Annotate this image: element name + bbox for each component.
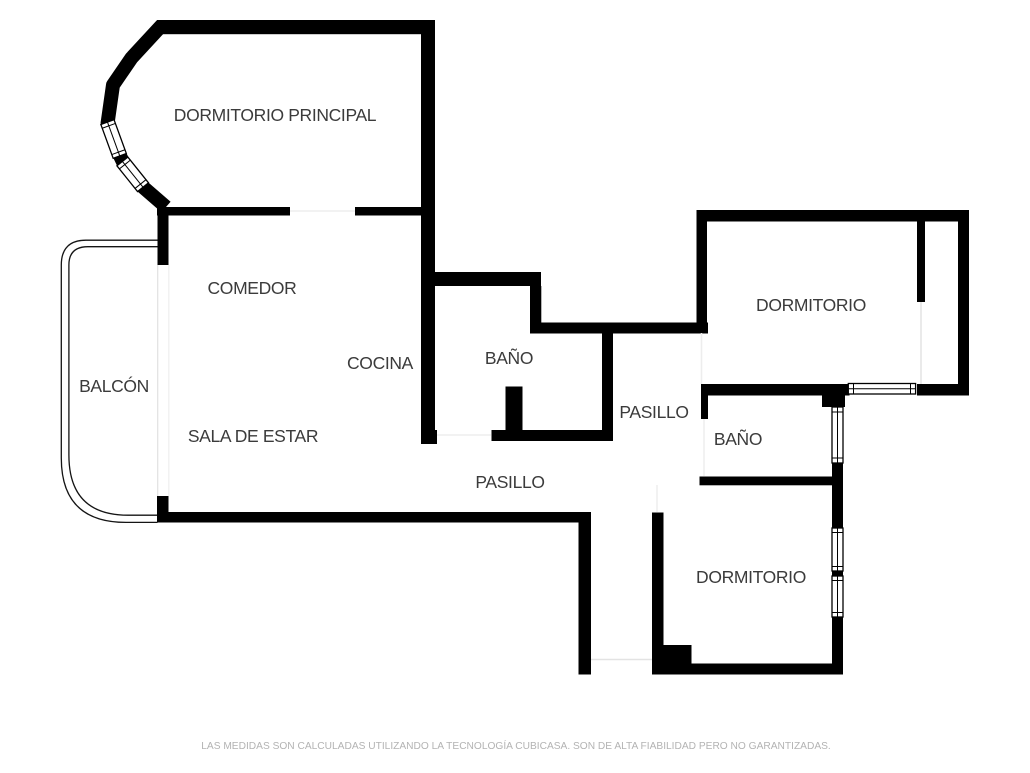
svg-text:SALA DE ESTAR: SALA DE ESTAR [188,426,318,446]
svg-text:BAÑO: BAÑO [714,428,762,449]
svg-text:COMEDOR: COMEDOR [208,278,297,298]
svg-text:DORMITORIO: DORMITORIO [696,567,806,587]
svg-text:PASILLO: PASILLO [619,402,688,422]
svg-text:LAS MEDIDAS SON CALCULADAS UTI: LAS MEDIDAS SON CALCULADAS UTILIZANDO LA… [201,739,831,752]
svg-text:DORMITORIO PRINCIPAL: DORMITORIO PRINCIPAL [174,105,377,125]
svg-text:BAÑO: BAÑO [485,347,533,368]
svg-text:DORMITORIO: DORMITORIO [756,295,866,315]
svg-text:PASILLO: PASILLO [475,472,544,492]
svg-text:COCINA: COCINA [347,353,414,373]
svg-text:BALCÓN: BALCÓN [79,375,149,396]
